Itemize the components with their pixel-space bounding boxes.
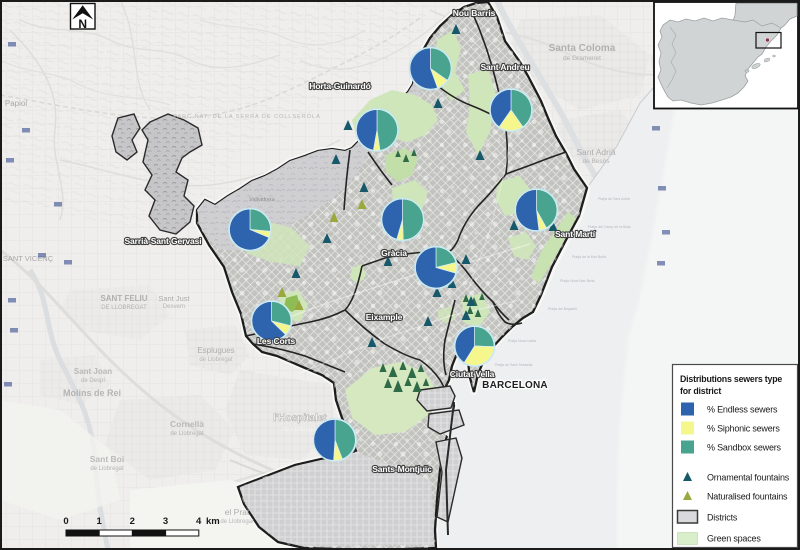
svg-text:Platja Nova Mar Bella: Platja Nova Mar Bella (560, 279, 595, 283)
svg-text:Sant Martí: Sant Martí (555, 229, 596, 239)
svg-text:Sants-Montjuïc: Sants-Montjuïc (372, 464, 432, 474)
svg-text:Desvern: Desvern (163, 304, 185, 310)
svg-text:Eixample: Eixample (366, 312, 403, 322)
svg-text:Platja Nova Icària: Platja Nova Icària (508, 339, 536, 343)
svg-text:Sarrià-Sant Gervasi: Sarrià-Sant Gervasi (124, 236, 201, 246)
svg-text:de Despí: de Despí (81, 378, 105, 384)
svg-text:de Llobregat: de Llobregat (199, 357, 233, 363)
svg-text:Cornellà: Cornellà (170, 419, 204, 429)
svg-text:% Endless sewers: % Endless sewers (707, 405, 778, 415)
svg-text:Nou Barris: Nou Barris (453, 8, 496, 18)
svg-text:Les Corts: Les Corts (257, 336, 296, 346)
svg-text:1: 1 (97, 516, 103, 527)
svg-text:de Llobregat: de Llobregat (282, 426, 318, 433)
svg-text:Platja de Sant Sebastià: Platja de Sant Sebastià (495, 363, 532, 367)
svg-text:SANT VICENÇ: SANT VICENÇ (3, 254, 54, 263)
svg-text:Platja de la Mar Bella: Platja de la Mar Bella (572, 255, 606, 259)
svg-text:SANT FELIU: SANT FELIU (100, 294, 147, 303)
svg-text:Sant Joan: Sant Joan (74, 367, 112, 376)
svg-text:Naturalised fountains: Naturalised fountains (707, 492, 788, 502)
svg-text:2: 2 (130, 516, 135, 527)
svg-text:4: 4 (196, 516, 202, 527)
svg-text:BARCELONA: BARCELONA (482, 380, 548, 391)
svg-text:0: 0 (63, 516, 68, 527)
svg-text:Sant Adrià: Sant Adrià (576, 147, 615, 157)
svg-text:Vallvidrera: Vallvidrera (249, 197, 276, 203)
svg-text:Santa Coloma: Santa Coloma (549, 43, 616, 54)
svg-text:de Gramenet: de Gramenet (563, 55, 601, 62)
svg-text:DE LLOBREGAT: DE LLOBREGAT (101, 305, 147, 311)
svg-text:de Llobregat: de Llobregat (220, 519, 254, 525)
svg-text:Ciutat Vella: Ciutat Vella (450, 369, 495, 379)
svg-text:km: km (206, 516, 220, 527)
svg-text:Esplugues: Esplugues (197, 346, 234, 355)
svg-text:N: N (78, 17, 87, 31)
svg-text:% Sandbox sewers: % Sandbox sewers (707, 443, 782, 453)
svg-text:Molins de Rei: Molins de Rei (63, 388, 121, 398)
svg-text:Platja de Sant Adrià: Platja de Sant Adrià (598, 197, 630, 201)
svg-text:Platja del Bogatell: Platja del Bogatell (548, 307, 577, 311)
svg-text:Gràcia: Gràcia (381, 248, 407, 258)
svg-text:Districts: Districts (707, 513, 738, 523)
svg-text:% Siphonic sewers: % Siphonic sewers (707, 424, 780, 434)
svg-text:l'Hospitalet: l'Hospitalet (273, 413, 327, 424)
svg-text:de Llobregat: de Llobregat (170, 431, 204, 437)
svg-text:Papiol: Papiol (5, 99, 27, 108)
svg-text:3: 3 (163, 516, 168, 527)
svg-text:Green spaces: Green spaces (707, 534, 761, 544)
svg-text:Ornamental fountains: Ornamental fountains (707, 473, 790, 483)
svg-text:Sant Just: Sant Just (158, 294, 190, 303)
svg-text:Horta-Guinardó: Horta-Guinardó (309, 81, 370, 91)
svg-text:Sant Boi: Sant Boi (90, 454, 124, 464)
svg-text:el Prat: el Prat (225, 507, 250, 517)
svg-text:for district: for district (680, 386, 721, 396)
svg-text:Sant Andreu: Sant Andreu (480, 62, 529, 72)
svg-text:de Llobregat: de Llobregat (90, 466, 124, 472)
svg-text:de Besòs: de Besòs (582, 158, 610, 165)
svg-text:PARC NAT. DE LA SERRA DE COLLS: PARC NAT. DE LA SERRA DE COLLSEROLA (173, 114, 321, 120)
svg-text:Distributions sewers type: Distributions sewers type (680, 374, 782, 384)
